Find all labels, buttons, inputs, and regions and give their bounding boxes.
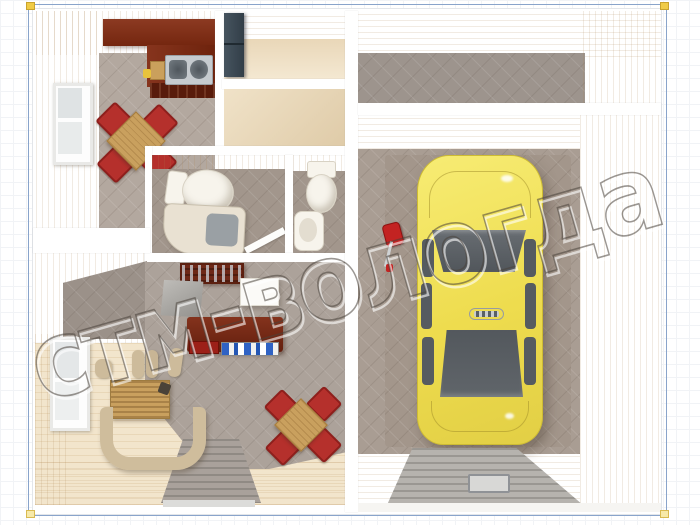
- document-canvas: стм-вологда стм-вологда: [0, 0, 700, 525]
- selection-frame[interactable]: [28, 4, 667, 516]
- selection-handle-top-right[interactable]: [660, 2, 669, 10]
- selection-handle-top-left[interactable]: [26, 2, 35, 10]
- selection-handle-bottom-left[interactable]: [26, 510, 35, 518]
- selection-handle-bottom-right[interactable]: [660, 510, 669, 518]
